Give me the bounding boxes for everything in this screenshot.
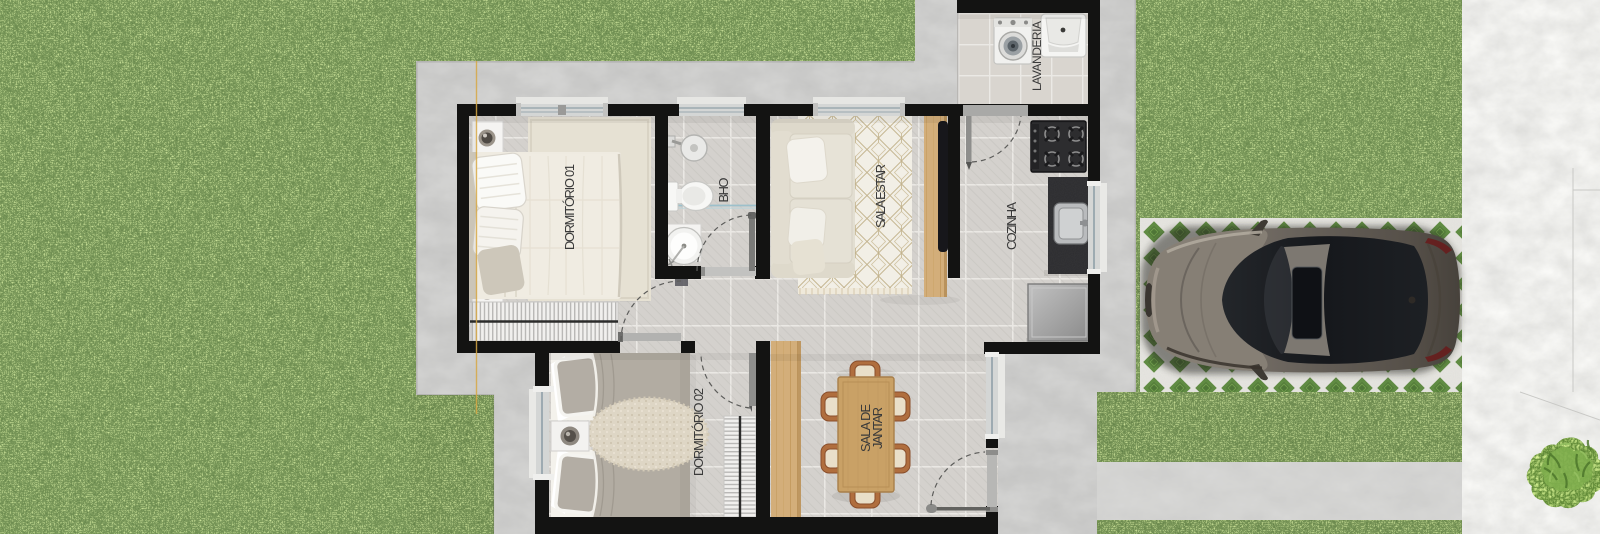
svg-text:BHO: BHO — [716, 177, 731, 202]
svg-text:COZINHA: COZINHA — [1004, 202, 1019, 250]
svg-text:LAVANDERIA: LAVANDERIA — [1030, 21, 1044, 91]
svg-text:DORMITÓRIO 02: DORMITÓRIO 02 — [691, 388, 706, 476]
svg-text:JANTAR: JANTAR — [870, 407, 885, 449]
svg-text:SALA ESTAR: SALA ESTAR — [873, 164, 888, 228]
svg-text:DORMITÓRIO 01: DORMITÓRIO 01 — [562, 164, 577, 250]
